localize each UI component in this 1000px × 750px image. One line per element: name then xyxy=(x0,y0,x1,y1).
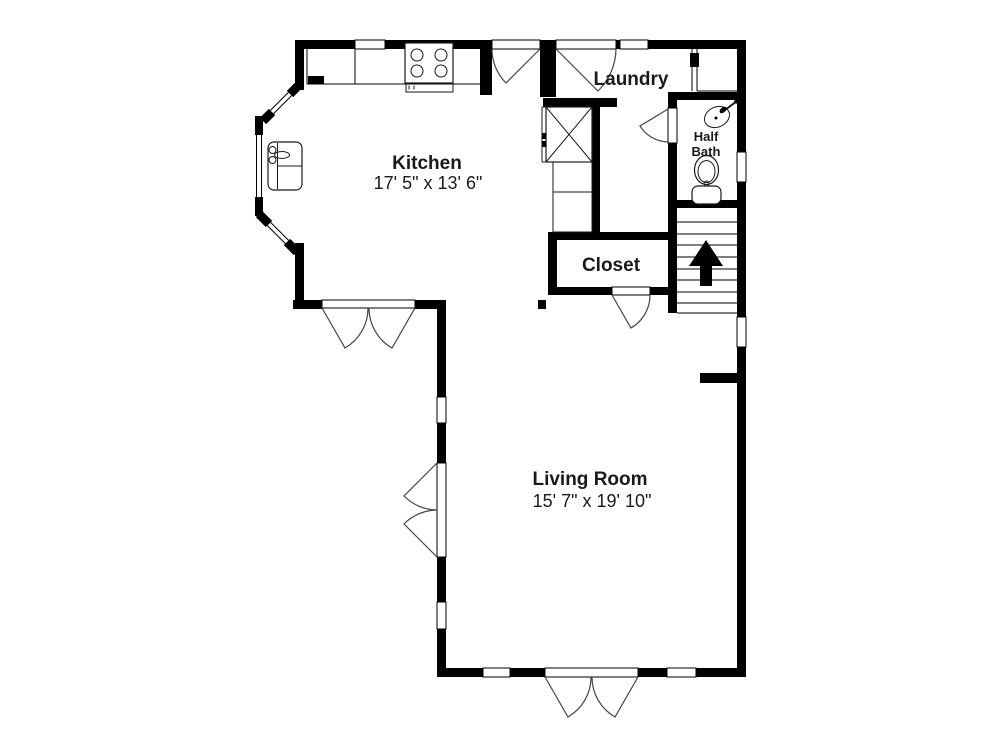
living-room-bottom-french-doors xyxy=(545,668,638,717)
kitchen-sink-icon xyxy=(268,142,302,190)
floor-plan: Kitchen 17' 5" x 13' 6" Laundry Half Bat… xyxy=(0,0,1000,750)
half-bath-door xyxy=(640,108,677,143)
doors xyxy=(322,40,677,717)
living-room-side-french-doors xyxy=(404,463,446,557)
kitchen-counter xyxy=(307,49,480,84)
floor-plan-svg: Kitchen 17' 5" x 13' 6" Laundry Half Bat… xyxy=(0,0,1000,750)
living-room-label: Living Room xyxy=(532,469,647,490)
exterior-walls xyxy=(293,40,746,677)
closet-door xyxy=(612,287,650,328)
laundry-storage-closet xyxy=(690,49,737,91)
closet-label: Closet xyxy=(582,255,641,276)
laundry-label: Laundry xyxy=(594,69,669,90)
staircase xyxy=(677,222,737,313)
half-bath-label-line2: Bath xyxy=(692,144,721,159)
kitchen-french-doors xyxy=(322,300,415,348)
interior-walls xyxy=(480,49,746,383)
living-room-dimensions: 15' 7" x 19' 10" xyxy=(533,491,652,511)
washer-dryer-icon xyxy=(542,107,593,162)
kitchen-dimensions: 17' 5" x 13' 6" xyxy=(374,173,483,193)
kitchen-cabinets xyxy=(553,162,592,232)
toilet-icon xyxy=(692,156,721,205)
kitchen-label: Kitchen xyxy=(392,153,462,174)
kitchen-entry-door xyxy=(492,40,540,83)
half-bath-label-line1: Half xyxy=(694,129,719,144)
stairs-up-arrow-icon xyxy=(689,240,723,286)
stove-icon xyxy=(405,43,453,92)
